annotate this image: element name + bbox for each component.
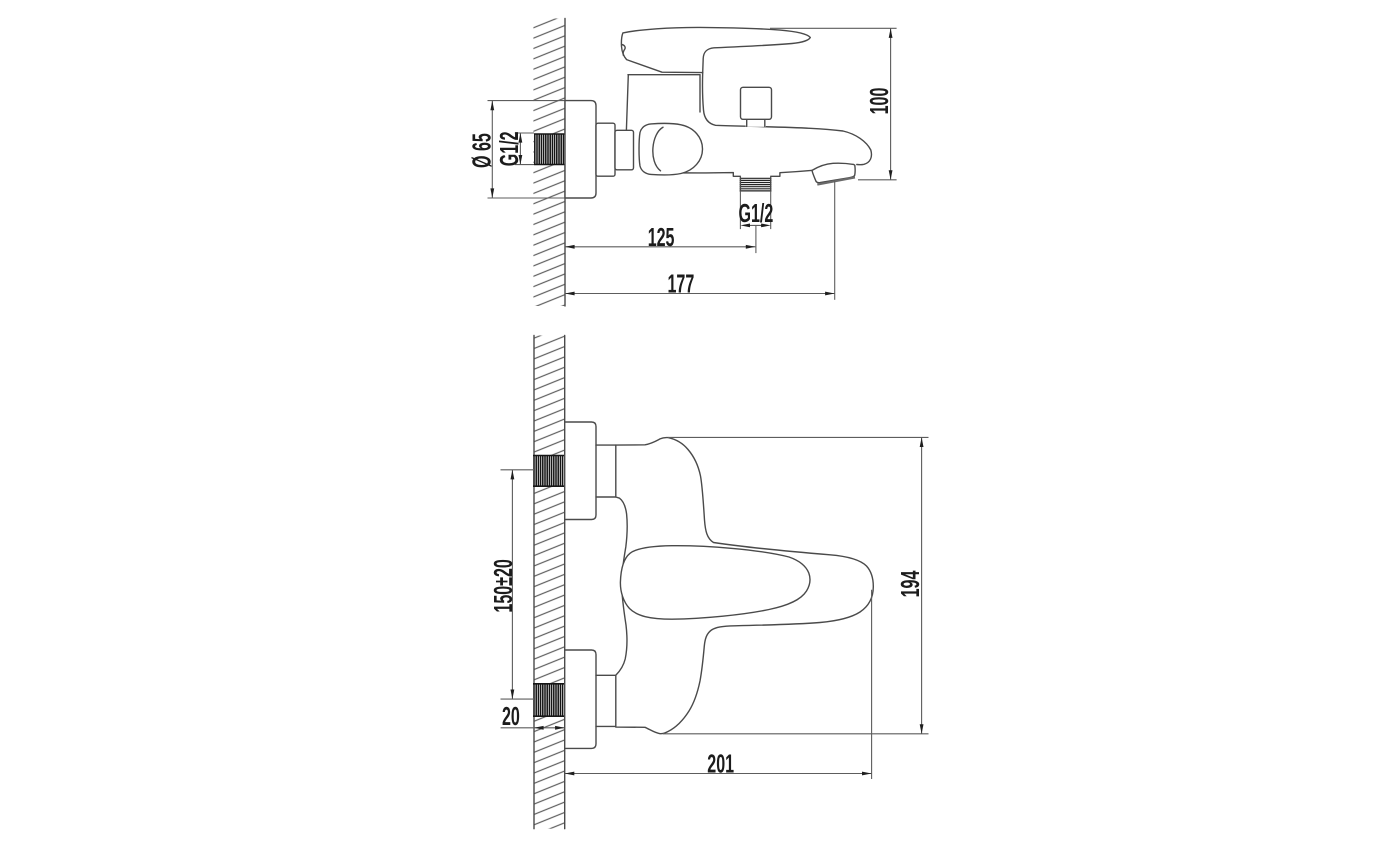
- svg-text:201: 201: [707, 750, 734, 779]
- svg-text:100: 100: [865, 88, 894, 115]
- svg-text:G1/2: G1/2: [495, 131, 524, 166]
- svg-text:177: 177: [668, 270, 695, 299]
- svg-text:G1/2: G1/2: [739, 199, 774, 228]
- svg-text:20: 20: [502, 702, 520, 731]
- svg-text:194: 194: [896, 570, 925, 597]
- svg-text:Ø 65: Ø 65: [468, 133, 497, 168]
- svg-text:125: 125: [648, 223, 675, 252]
- svg-text:150±20: 150±20: [489, 559, 518, 612]
